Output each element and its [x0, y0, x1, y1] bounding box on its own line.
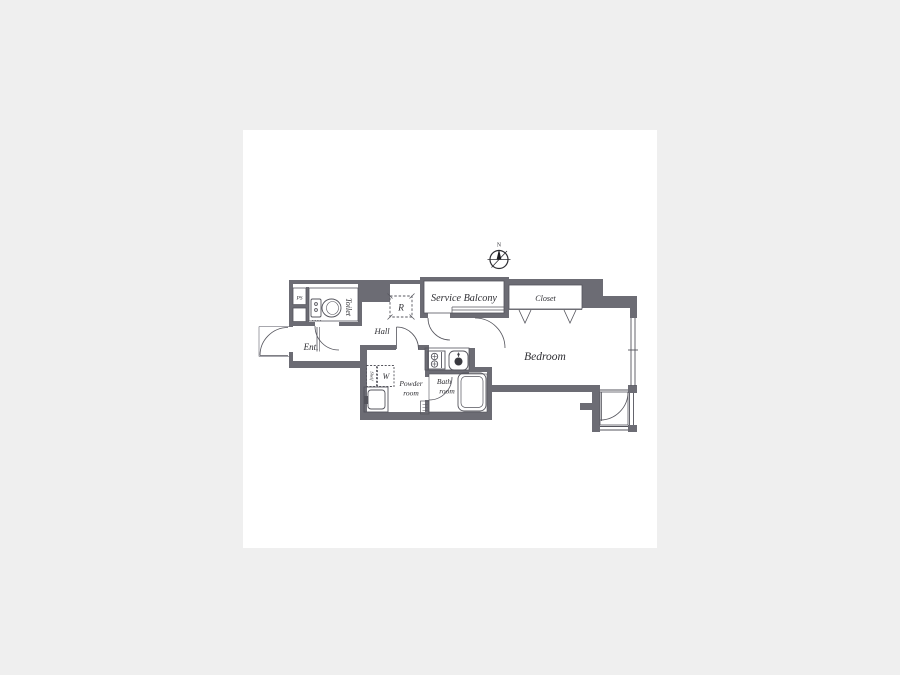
label-shelf: Shelf [369, 371, 374, 381]
room-label-bedroom: Bedroom [524, 351, 566, 363]
room-label-powder-room-2: room [403, 389, 419, 398]
room-label-service-balcony: Service Balcony [431, 293, 497, 304]
room-label-hall: Hall [373, 326, 390, 336]
label-refrigerator: R [397, 304, 404, 314]
room-label-bath-room-2: room [439, 387, 455, 396]
room-label-closet: Closet [535, 294, 556, 303]
label-pipe-space: PS [295, 296, 302, 302]
room-label-entrance: Ent. [303, 342, 319, 352]
room-label-toilet: Toilet [344, 298, 353, 317]
plan-card [243, 130, 657, 548]
floor-plan-page: N [0, 0, 900, 675]
floor-plan-svg: N [0, 0, 900, 675]
room-label-bath-room-1: Bath [437, 377, 451, 386]
room-label-powder-room-1: Powder [398, 379, 422, 388]
